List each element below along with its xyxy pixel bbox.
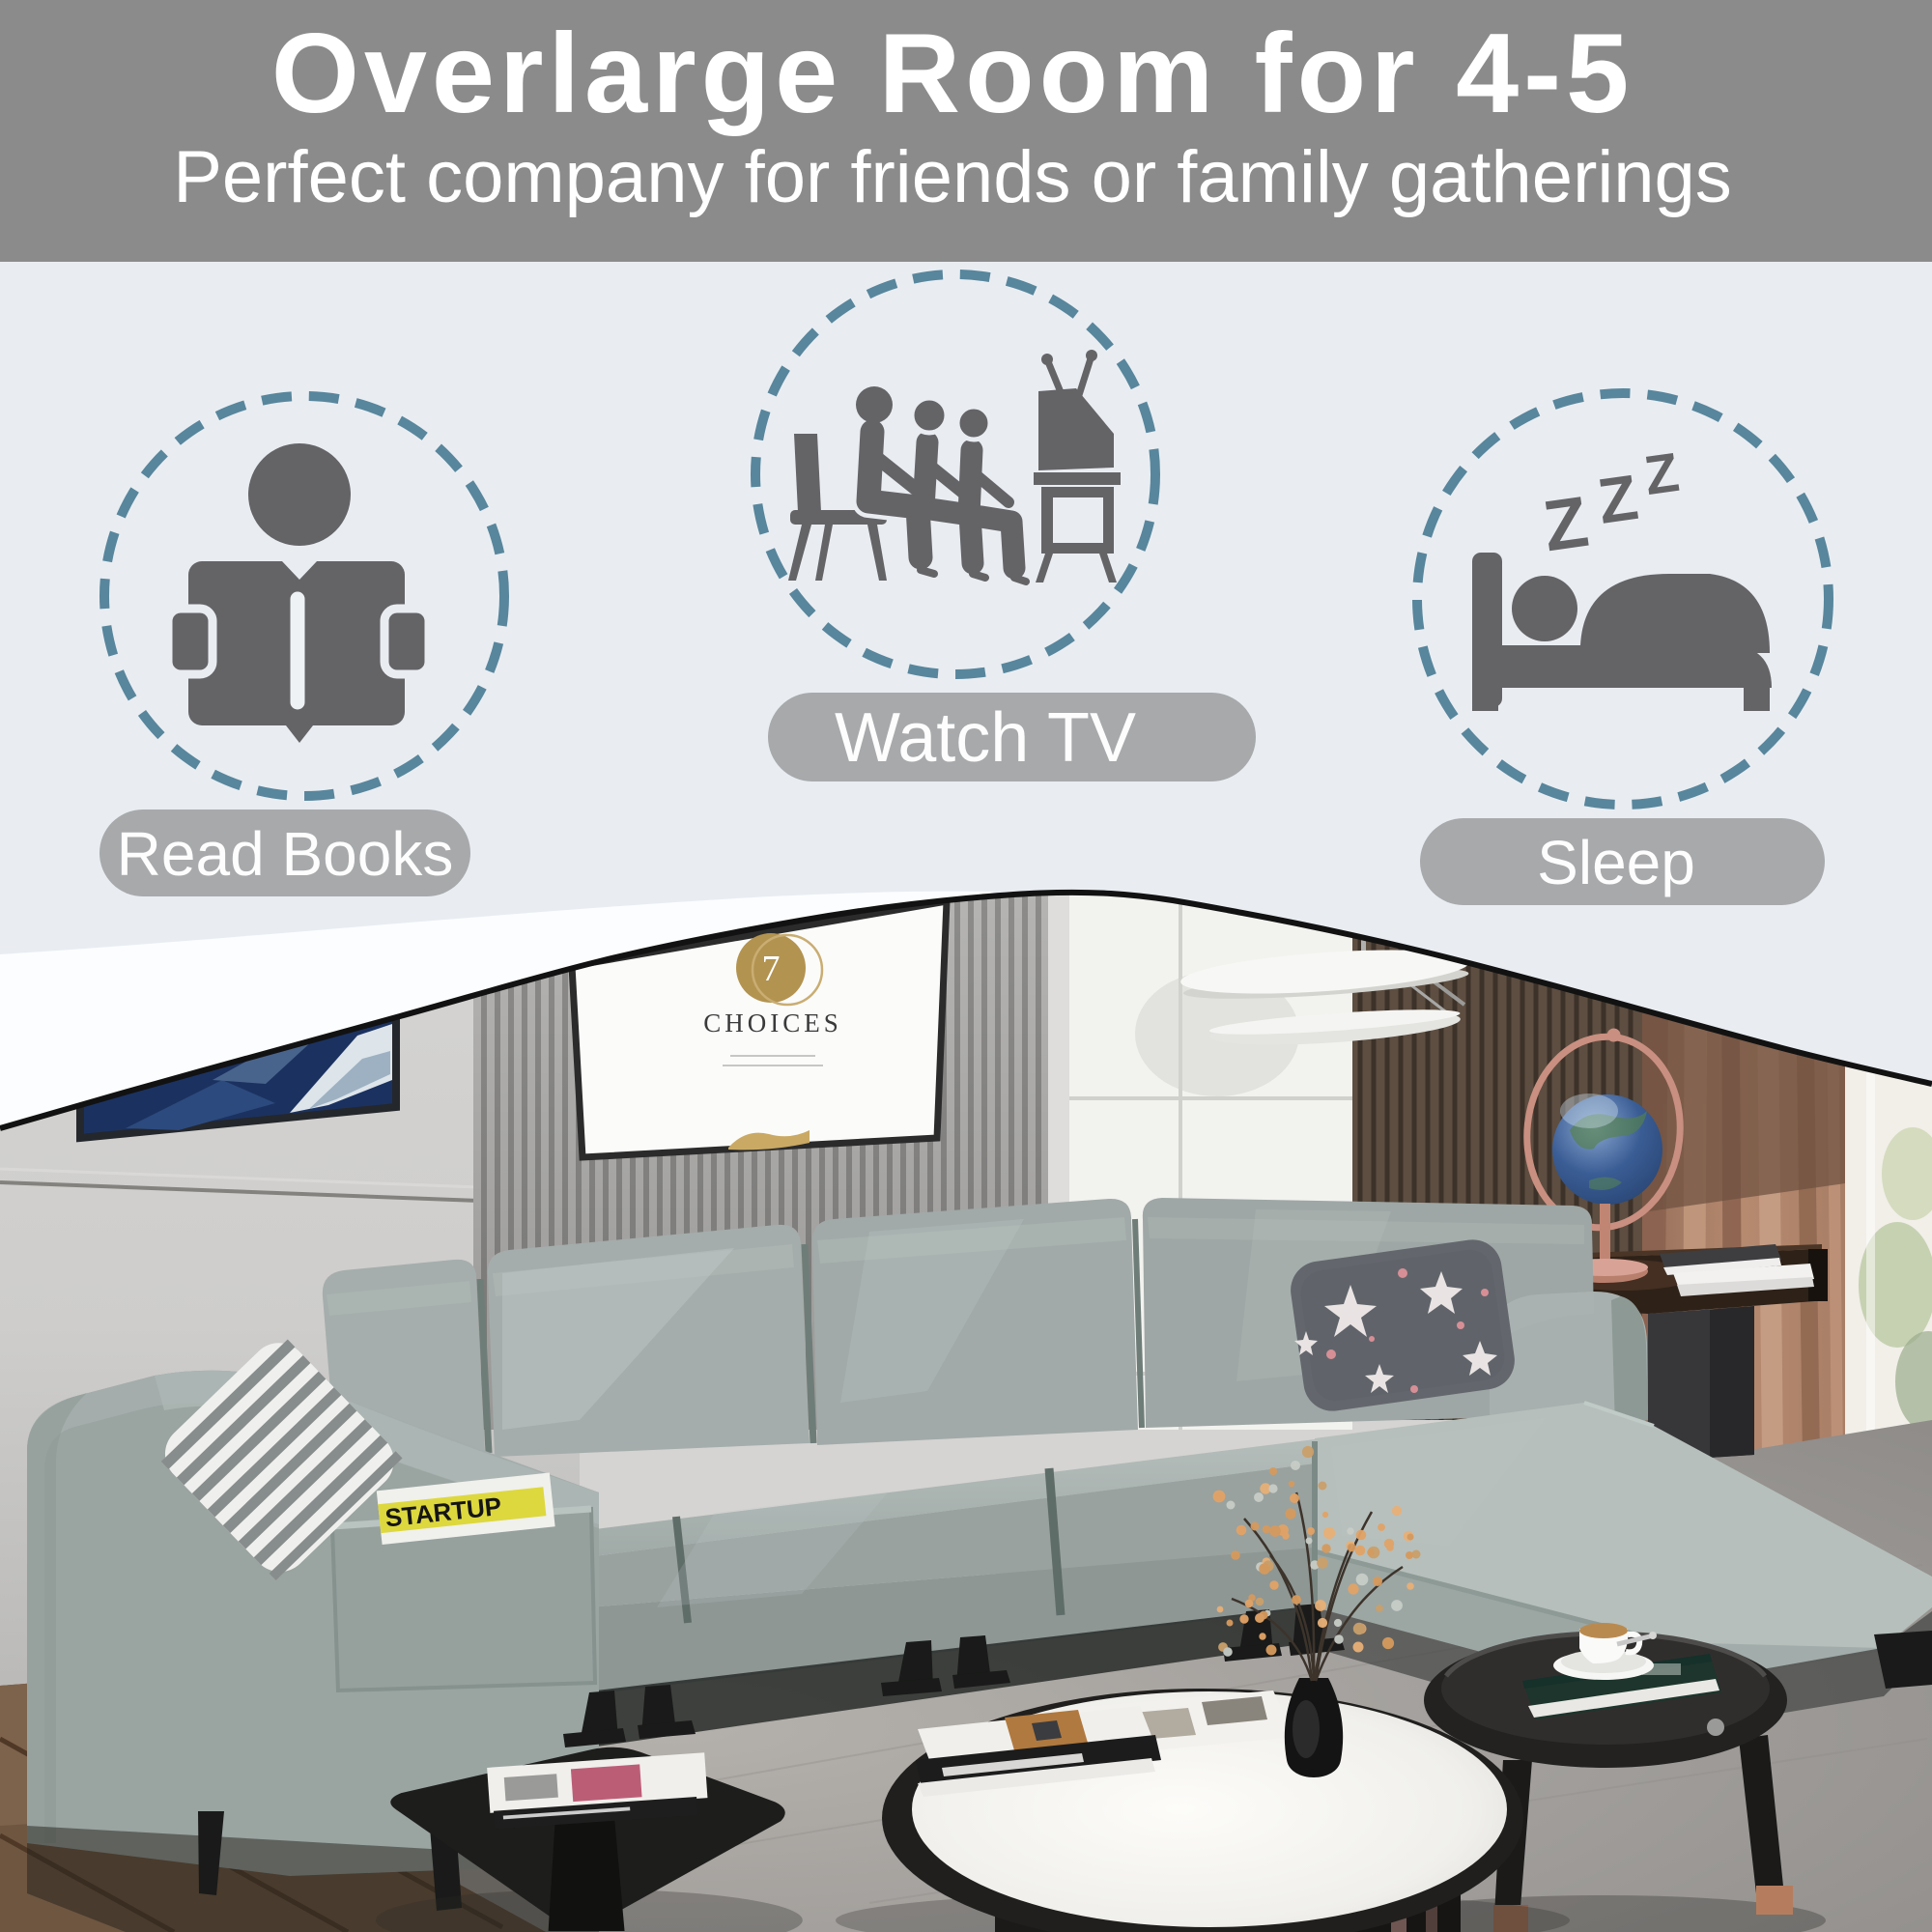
svg-text:Z: Z: [1594, 461, 1642, 537]
svg-text:Z: Z: [1641, 441, 1683, 507]
svg-text:CHOICES: CHOICES: [703, 1009, 842, 1037]
svg-text:Sleep: Sleep: [1537, 828, 1695, 897]
svg-text:Watch TV: Watch TV: [835, 699, 1136, 777]
svg-text:Read Books: Read Books: [117, 819, 454, 889]
svg-text:Z: Z: [1539, 481, 1593, 566]
svg-text:7: 7: [762, 949, 781, 989]
